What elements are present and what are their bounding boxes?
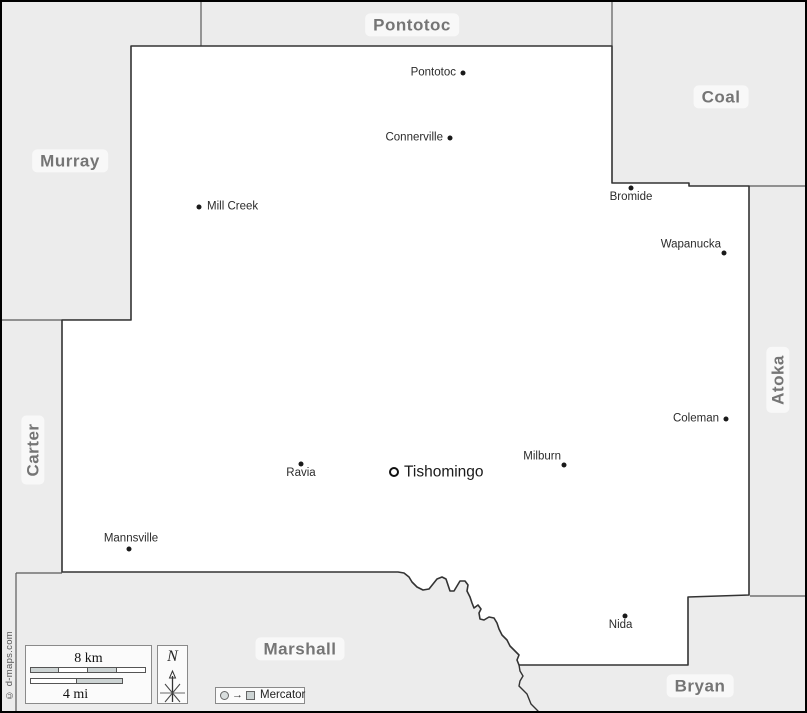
town-dot-ravia bbox=[299, 462, 304, 467]
town-dot-mill-creek bbox=[197, 205, 202, 210]
town-dot-milburn bbox=[562, 463, 567, 468]
town-label-nida: Nida bbox=[609, 620, 633, 632]
scale-km-label: 8 km bbox=[26, 652, 151, 666]
scale-mi-label: 4 mi bbox=[13, 688, 138, 702]
town-dot-mannsville bbox=[127, 547, 132, 552]
compass-icon bbox=[158, 668, 187, 704]
north-letter: N bbox=[158, 648, 187, 666]
scale-segment bbox=[30, 667, 59, 673]
county-map: PontotocCoalMurrayCarterAtokaMarshallBry… bbox=[0, 0, 807, 713]
scale-segment bbox=[88, 667, 117, 673]
town-label-tishomingo: Tishomingo bbox=[404, 464, 484, 480]
county-label-atoka: Atoka bbox=[766, 347, 789, 413]
globe-circle-icon bbox=[220, 691, 229, 700]
town-dot-pontotoc bbox=[461, 71, 466, 76]
town-label-connerville: Connerville bbox=[385, 132, 443, 144]
county-label-coal: Coal bbox=[694, 85, 749, 108]
county-label-murray: Murray bbox=[32, 149, 108, 172]
town-dot-connerville bbox=[448, 136, 453, 141]
town-dot-tishomingo bbox=[389, 467, 399, 477]
town-dot-wapanucka bbox=[722, 251, 727, 256]
river-boundary bbox=[519, 665, 540, 713]
town-label-mill-creek: Mill Creek bbox=[207, 201, 258, 213]
projection-label: Mercator bbox=[260, 690, 305, 702]
scale-bar: 8 km 4 mi bbox=[25, 645, 152, 704]
town-label-pontotoc: Pontotoc bbox=[411, 67, 456, 79]
county-label-carter: Carter bbox=[21, 415, 44, 484]
arrow-icon: → bbox=[232, 690, 243, 701]
county-label-pontotoc: Pontotoc bbox=[365, 13, 459, 36]
flat-map-square-icon bbox=[246, 691, 255, 700]
county-label-marshall: Marshall bbox=[256, 637, 345, 660]
town-dot-coleman bbox=[724, 417, 729, 422]
town-dot-nida bbox=[623, 614, 628, 619]
scale-segment bbox=[77, 678, 124, 684]
town-label-coleman: Coleman bbox=[673, 413, 719, 425]
town-label-milburn: Milburn bbox=[523, 452, 561, 464]
scale-segment bbox=[30, 678, 77, 684]
town-label-ravia: Ravia bbox=[286, 468, 315, 480]
scale-segment bbox=[59, 667, 88, 673]
scale-segment bbox=[117, 667, 146, 673]
north-indicator: N bbox=[157, 645, 188, 704]
map-boundaries bbox=[2, 2, 807, 713]
county-label-bryan: Bryan bbox=[667, 674, 734, 697]
projection-box: → Mercator bbox=[215, 687, 305, 704]
town-label-bromide: Bromide bbox=[610, 192, 653, 204]
town-label-wapanucka: Wapanucka bbox=[661, 240, 721, 252]
copyright-text: © d-maps.com bbox=[4, 631, 15, 701]
town-label-mannsville: Mannsville bbox=[104, 534, 158, 546]
scale-km-bar bbox=[30, 667, 146, 673]
town-dot-bromide bbox=[629, 186, 634, 191]
scale-mi-bar bbox=[30, 678, 123, 684]
